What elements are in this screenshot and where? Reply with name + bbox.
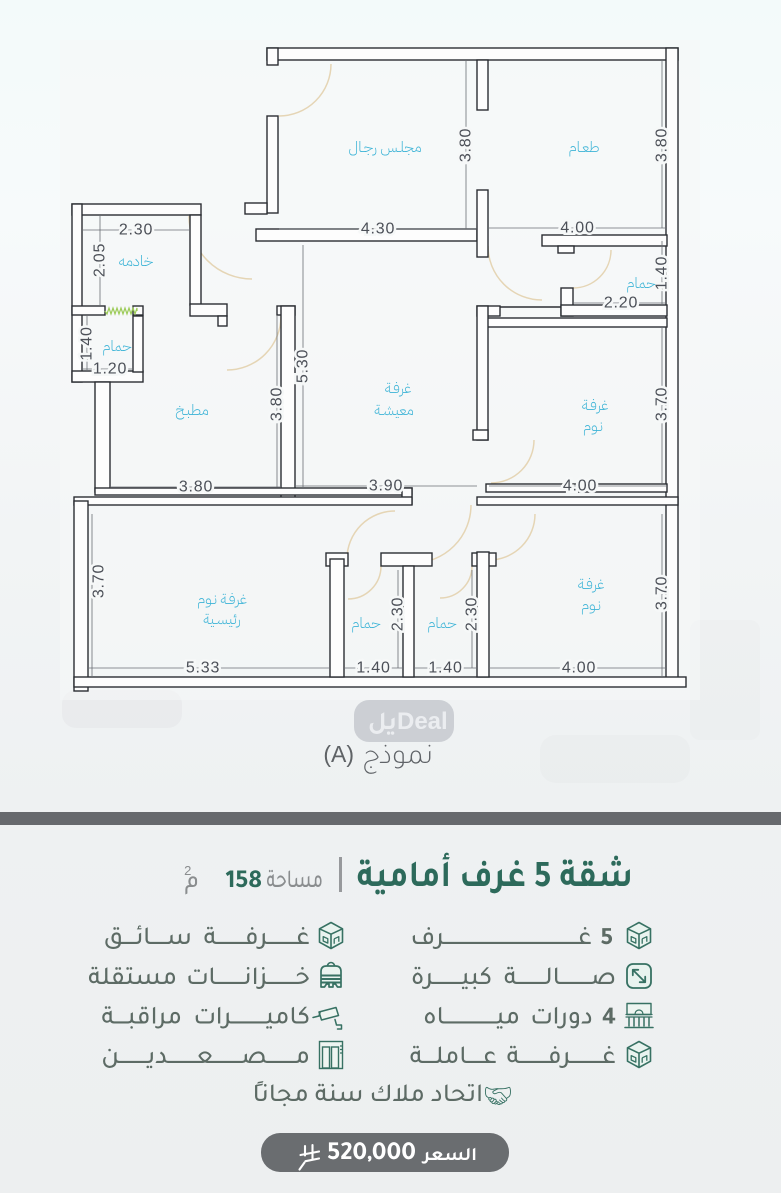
svg-text:1.40: 1.40 <box>79 326 96 360</box>
svg-text:3.80: 3.80 <box>654 128 671 162</box>
svg-text:2.20: 2.20 <box>604 295 638 312</box>
svg-text:5.33: 5.33 <box>186 660 220 677</box>
svg-text:1.20: 1.20 <box>93 361 127 378</box>
svg-text:5.30: 5.30 <box>295 349 312 383</box>
svg-text:4.30: 4.30 <box>361 221 395 238</box>
svg-text:4.00: 4.00 <box>563 478 597 495</box>
svg-text:3.80: 3.80 <box>179 479 213 496</box>
svg-text:2: 2 <box>184 863 191 878</box>
svg-text:4.00: 4.00 <box>562 660 596 677</box>
svg-text:3.80: 3.80 <box>458 128 475 162</box>
svg-text:2.30: 2.30 <box>390 597 407 631</box>
svg-text:1.40: 1.40 <box>428 660 462 677</box>
svg-text:3.90: 3.90 <box>369 478 403 495</box>
svg-text:1.40: 1.40 <box>654 256 671 290</box>
svg-text:3.80: 3.80 <box>269 387 286 421</box>
svg-text:3.70: 3.70 <box>91 564 108 598</box>
svg-text:4.00: 4.00 <box>560 220 594 237</box>
svg-text:2.05: 2.05 <box>92 243 109 277</box>
svg-text:Deal: Deal <box>397 708 448 735</box>
svg-text:(A): (A) <box>323 741 354 767</box>
svg-text:2.30: 2.30 <box>119 222 153 239</box>
svg-text:1.40: 1.40 <box>356 660 390 677</box>
svg-text:3.70: 3.70 <box>654 576 671 610</box>
svg-text:3.70: 3.70 <box>654 387 671 421</box>
svg-text:2.30: 2.30 <box>464 597 481 631</box>
